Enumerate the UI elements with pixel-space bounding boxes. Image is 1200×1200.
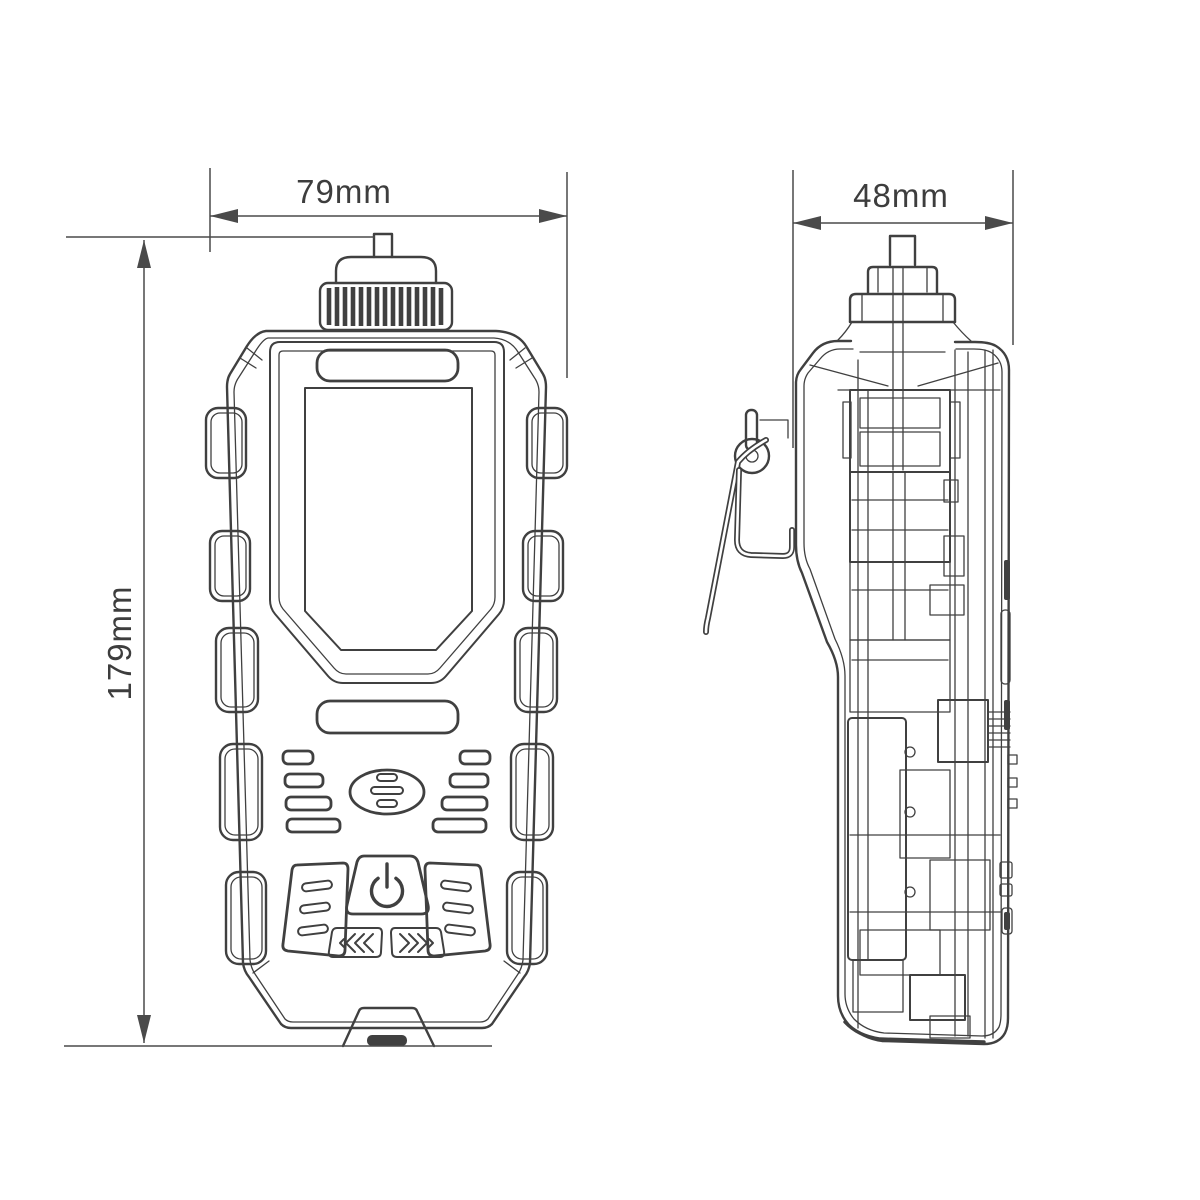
belt-clip bbox=[706, 410, 792, 632]
right-button-slots bbox=[441, 880, 476, 936]
cap-dome bbox=[336, 257, 436, 283]
height-label: 179mm bbox=[101, 585, 138, 700]
bottom-slot bbox=[317, 701, 458, 733]
speaker-slots-left bbox=[283, 751, 340, 832]
arrow-left-icon bbox=[210, 209, 238, 223]
cap-channel bbox=[893, 268, 903, 470]
usb-port[interactable] bbox=[367, 1035, 407, 1046]
fan-inlet-panel bbox=[329, 928, 382, 957]
speaker-slots-right bbox=[433, 751, 490, 832]
drawing-page: 79mm 48mm 179mm bbox=[0, 0, 1200, 1200]
bottom-heavy-line bbox=[845, 1022, 984, 1042]
knurl-hatching bbox=[329, 287, 441, 326]
fan-outlet-panel bbox=[391, 928, 444, 957]
clip-wire bbox=[706, 440, 792, 632]
arrow-left-icon bbox=[793, 216, 821, 230]
right-button[interactable] bbox=[425, 863, 490, 956]
top-slot bbox=[317, 350, 458, 381]
power-button[interactable] bbox=[347, 856, 429, 914]
dimensions: 79mm 48mm 179mm bbox=[64, 168, 1013, 1046]
width-label: 79mm bbox=[296, 173, 392, 210]
front-view bbox=[206, 234, 567, 1046]
arrow-right-icon bbox=[985, 216, 1013, 230]
drawing-canvas: 79mm 48mm 179mm bbox=[0, 0, 1200, 1200]
sensor-cap bbox=[320, 234, 452, 330]
connector-block bbox=[938, 700, 1010, 762]
power-icon bbox=[372, 864, 403, 906]
arrow-right-icon bbox=[539, 209, 567, 223]
cap-stub bbox=[374, 234, 392, 257]
depth-label: 48mm bbox=[853, 177, 949, 214]
arrow-up-icon bbox=[137, 240, 151, 268]
arrow-down-icon bbox=[137, 1015, 151, 1043]
side-view bbox=[706, 236, 1017, 1044]
speaker-grille bbox=[283, 751, 490, 832]
left-button[interactable] bbox=[283, 863, 348, 956]
internal-components bbox=[810, 350, 1010, 1038]
display-screen bbox=[305, 388, 472, 650]
left-button-slots bbox=[298, 880, 333, 936]
front-body-outline bbox=[227, 331, 546, 1028]
front-body-inner-line bbox=[234, 338, 539, 1022]
